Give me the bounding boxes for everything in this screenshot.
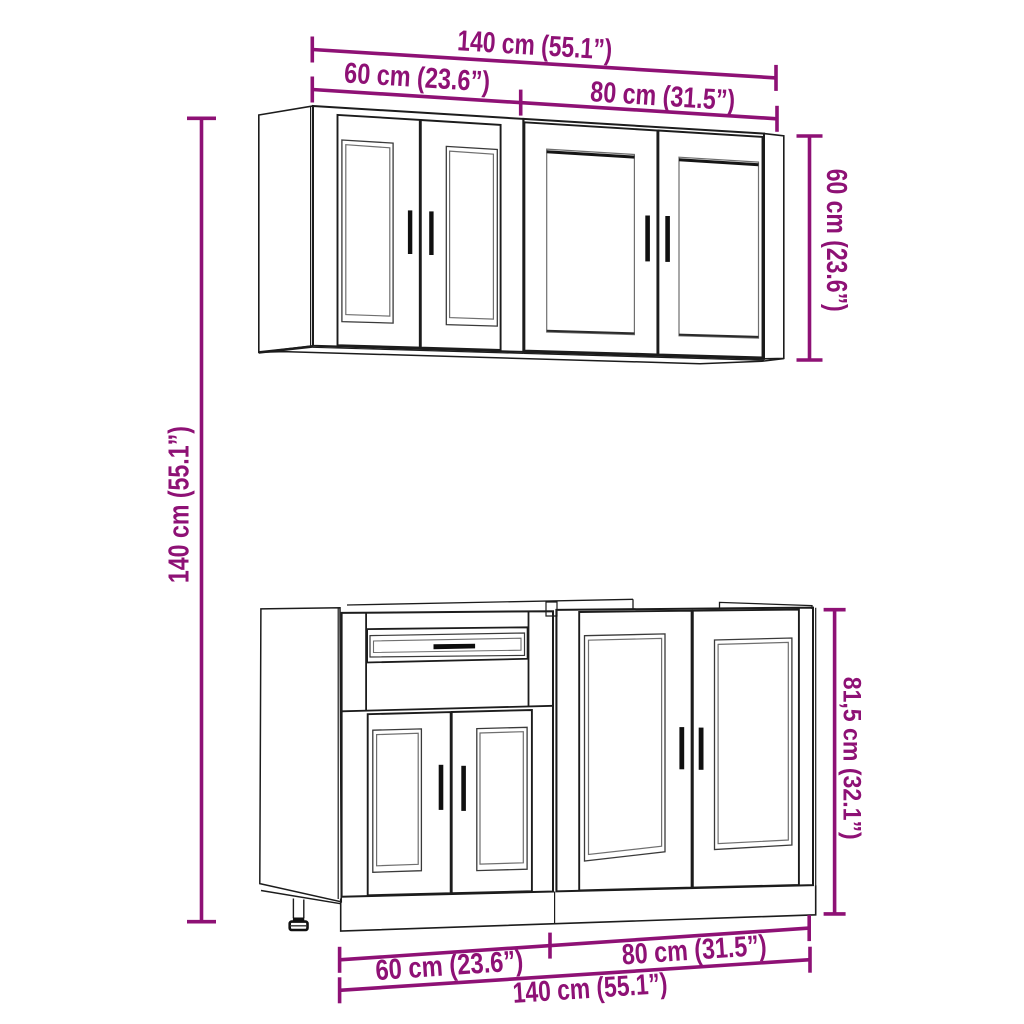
svg-text:81,5 cm (32.1”): 81,5 cm (32.1”)	[838, 677, 866, 840]
svg-text:140 cm (55.1”): 140 cm (55.1”)	[164, 426, 196, 583]
svg-text:60 cm (23.6”): 60 cm (23.6”)	[820, 169, 852, 312]
